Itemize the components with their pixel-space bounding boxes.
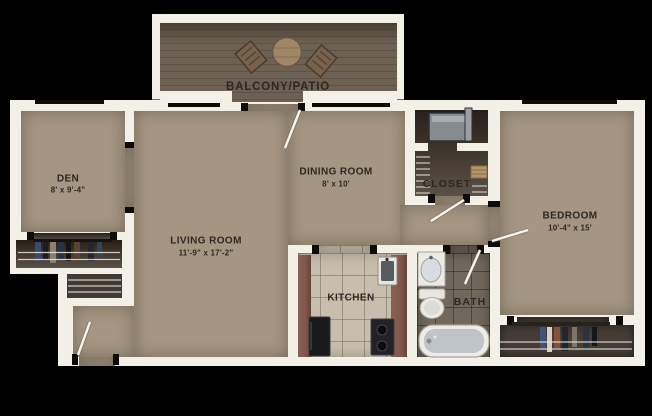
balcony-deck-shadow	[160, 23, 397, 43]
entry-door-threshold	[79, 357, 115, 366]
kitchen-door-threshold	[318, 245, 372, 253]
dining-room-dims: 8' x 10'	[322, 180, 350, 189]
kitchen-counter-right	[391, 255, 407, 357]
bedroom-label: BEDROOM	[542, 211, 597, 222]
dining-room-label: DINING ROOM	[299, 167, 372, 178]
bath-label: BATH	[454, 296, 486, 308]
bedroom-closet-floor	[500, 325, 634, 357]
dining-room-floor	[288, 111, 405, 245]
hall-floor	[400, 205, 488, 245]
exterior-notch	[0, 274, 58, 416]
den-label: DEN	[57, 174, 79, 185]
den-closet-doorway	[33, 233, 112, 240]
den-closet-floor	[16, 240, 122, 268]
balcony-label: BALCONY/PATIO	[226, 81, 330, 93]
linen-closet-floor	[67, 274, 122, 298]
bedroom-closet-doorway	[517, 317, 609, 325]
kitchen-label: KITCHEN	[327, 293, 374, 304]
entry-hall-floor	[73, 306, 134, 357]
bedroom-dims: 10'-4" x 15'	[548, 224, 592, 233]
bath-door-threshold	[450, 245, 480, 253]
den-opening-threshold	[125, 148, 134, 208]
living-room-dims: 11'-9" x 17'-2"	[179, 249, 234, 258]
floor-plan: BALCONY/PATIO DEN 8' x 9'-4" DINING ROOM…	[0, 0, 652, 416]
living-room-floor	[134, 111, 288, 357]
closet-door-threshold	[435, 196, 465, 205]
den-floor	[21, 111, 125, 232]
den-dims: 8' x 9'-4"	[51, 186, 86, 195]
closet-label: CLOSET	[423, 178, 472, 190]
bedroom-door-threshold	[488, 207, 500, 241]
living-room-label: LIVING ROOM	[170, 236, 242, 247]
balcony-door-threshold	[247, 104, 300, 111]
balcony-baluster-left	[160, 91, 232, 102]
kitchen-counter-left	[298, 255, 311, 357]
